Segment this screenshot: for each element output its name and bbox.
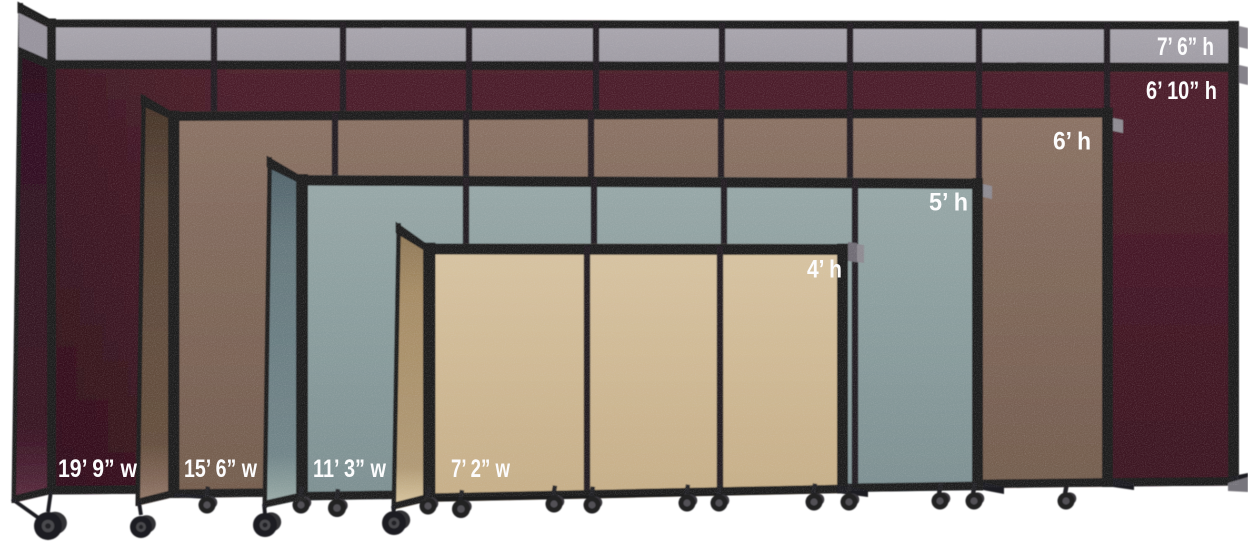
svg-text:6’ 10” h: 6’ 10” h bbox=[1146, 77, 1217, 105]
svg-text:7’ 2” w: 7’ 2” w bbox=[451, 455, 510, 483]
svg-text:15’ 6” w: 15’ 6” w bbox=[184, 455, 257, 483]
svg-text:19’ 9” w: 19’ 9” w bbox=[58, 455, 137, 483]
svg-text:6’ h: 6’ h bbox=[1053, 128, 1091, 156]
svg-text:4’ h: 4’ h bbox=[807, 256, 842, 284]
svg-text:5’ h: 5’ h bbox=[929, 189, 968, 217]
svg-text:7’ 6” h: 7’ 6” h bbox=[1157, 33, 1214, 61]
svg-text:11’ 3” w: 11’ 3” w bbox=[313, 455, 386, 483]
